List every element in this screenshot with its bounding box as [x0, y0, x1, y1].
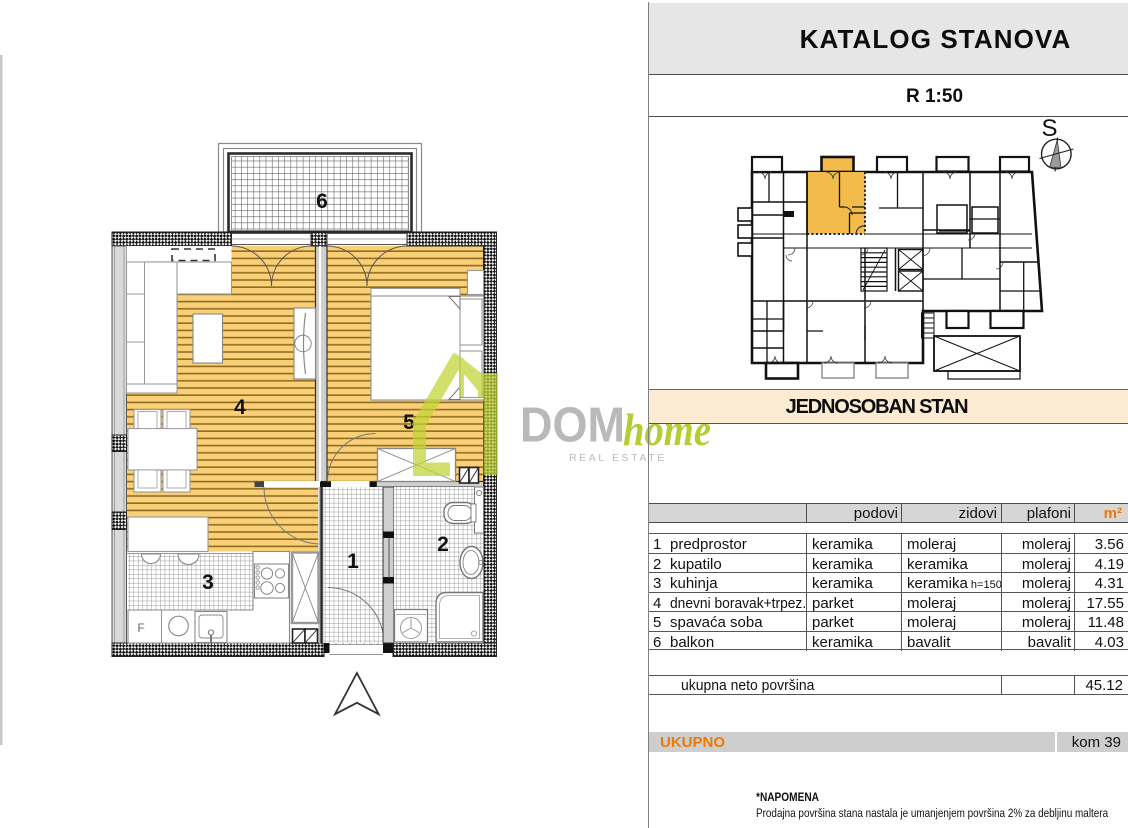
svg-text:S: S: [1041, 115, 1057, 142]
svg-text:REAL ESTATE: REAL ESTATE: [569, 452, 667, 464]
svg-text:DOM: DOM: [520, 399, 625, 453]
svg-text:3: 3: [202, 571, 214, 594]
svg-text:4: 4: [234, 396, 246, 419]
svg-text:6: 6: [316, 190, 328, 213]
svg-text:F: F: [137, 621, 144, 635]
svg-text:2: 2: [437, 533, 449, 556]
svg-text:1: 1: [347, 550, 359, 573]
